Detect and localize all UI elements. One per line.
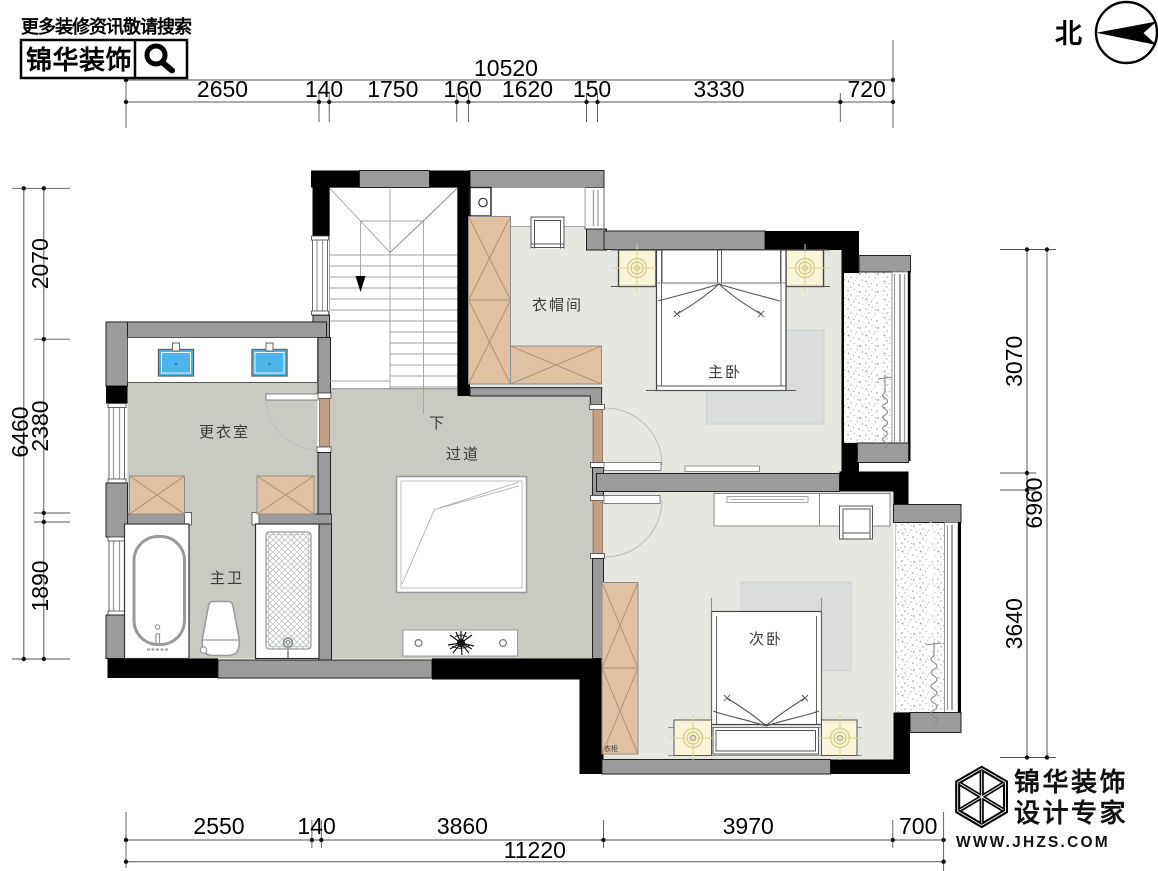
- svg-text:WWW.JHZS.COM: WWW.JHZS.COM: [956, 834, 1110, 851]
- svg-text:720: 720: [848, 76, 886, 102]
- svg-text:3070: 3070: [1001, 336, 1027, 387]
- svg-text:1750: 1750: [367, 76, 418, 102]
- svg-text:1890: 1890: [27, 560, 53, 611]
- svg-text:衣柜: 衣柜: [604, 744, 618, 753]
- svg-text:主卫: 主卫: [210, 570, 244, 587]
- svg-text:锦华装饰: 锦华装饰: [26, 45, 132, 75]
- svg-text:锦华装饰: 锦华装饰: [1014, 767, 1128, 797]
- svg-text:更多装修资讯敬请搜索: 更多装修资讯敬请搜索: [21, 16, 192, 37]
- svg-text:160: 160: [443, 76, 481, 102]
- svg-text:11220: 11220: [504, 837, 566, 863]
- svg-text:过道: 过道: [446, 446, 480, 463]
- svg-text:2070: 2070: [27, 238, 53, 289]
- svg-text:1620: 1620: [502, 76, 553, 102]
- svg-text:次卧: 次卧: [749, 631, 783, 648]
- svg-text:2380: 2380: [27, 400, 53, 451]
- svg-text:150: 150: [573, 76, 611, 102]
- svg-text:3860: 3860: [437, 813, 488, 839]
- svg-text:6960: 6960: [1021, 477, 1047, 528]
- svg-text:设计专家: 设计专家: [1014, 798, 1128, 828]
- svg-text:3970: 3970: [723, 813, 774, 839]
- svg-text:3640: 3640: [1001, 598, 1027, 649]
- svg-text:更衣室: 更衣室: [199, 424, 250, 441]
- svg-text:2550: 2550: [193, 813, 244, 839]
- svg-text:2650: 2650: [197, 76, 248, 102]
- svg-text:700: 700: [899, 813, 937, 839]
- svg-text:北: 北: [1055, 19, 1082, 49]
- svg-text:140: 140: [305, 76, 343, 102]
- svg-text:衣帽间: 衣帽间: [532, 297, 583, 314]
- svg-text:下: 下: [429, 415, 446, 432]
- svg-text:主卧: 主卧: [708, 364, 742, 381]
- svg-text:140: 140: [297, 813, 335, 839]
- svg-text:3330: 3330: [693, 76, 744, 102]
